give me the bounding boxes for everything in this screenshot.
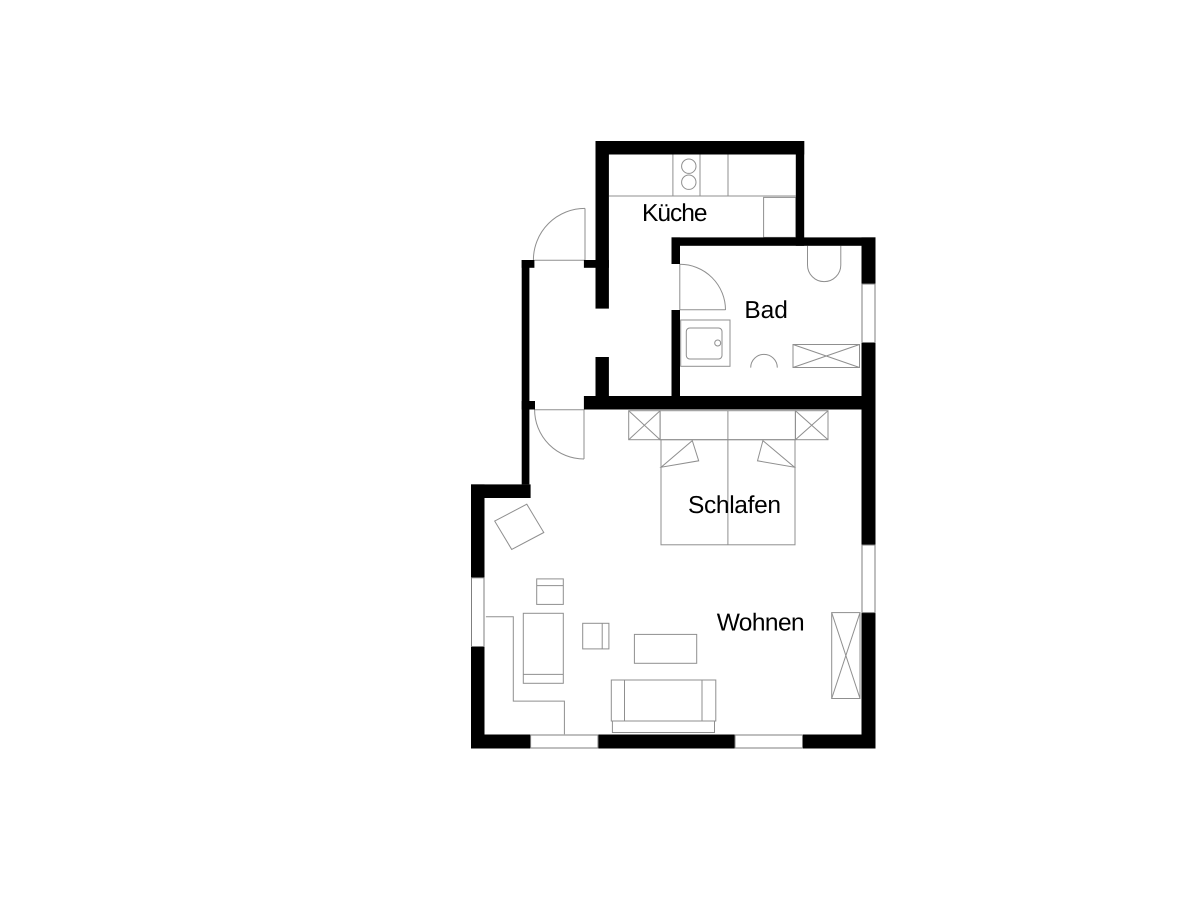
svg-text:Schlafen: Schlafen — [688, 492, 781, 519]
svg-text:Bad: Bad — [744, 297, 788, 324]
svg-text:Küche: Küche — [642, 200, 708, 227]
svg-text:Wohnen: Wohnen — [717, 610, 805, 637]
